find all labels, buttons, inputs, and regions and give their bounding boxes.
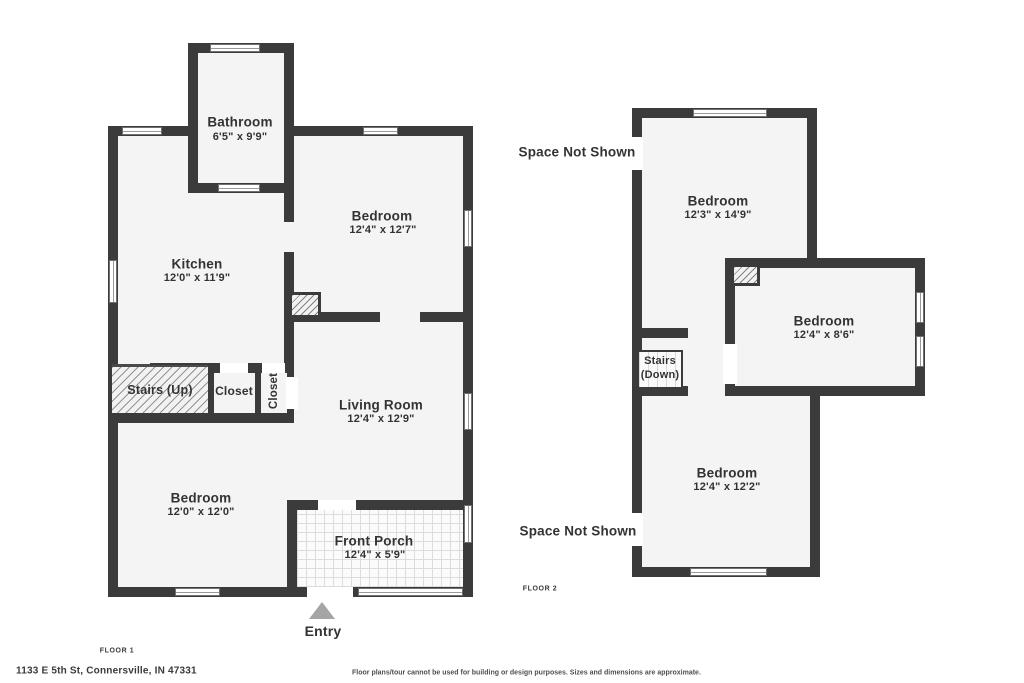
- stairs-down-label-line1: Stairs: [644, 355, 676, 367]
- room-dims-bedroom-top: 12'4" x 12'7": [349, 224, 416, 236]
- room-dims-bathroom: 6'5" x 9'9": [213, 131, 268, 143]
- wall: [810, 386, 820, 577]
- wall: [108, 126, 118, 597]
- wall: [287, 500, 297, 597]
- wall: [632, 328, 688, 338]
- window: [690, 568, 767, 576]
- wall: [108, 413, 294, 423]
- door-opening: [220, 363, 248, 373]
- room-dims-bedroom-right: 12'4" x 8'6": [794, 329, 855, 341]
- window: [122, 127, 162, 135]
- window: [358, 588, 463, 596]
- entry-arrow: [309, 602, 335, 619]
- room-label-closet-b: Closet: [268, 373, 280, 409]
- room-label-living-room: Living Room: [339, 398, 423, 413]
- wall: [915, 258, 925, 396]
- wall: [420, 312, 473, 322]
- wall: [255, 363, 261, 418]
- window: [464, 393, 472, 430]
- room-dims-living-room: 12'4" x 12'9": [347, 413, 414, 425]
- chimney: [289, 292, 321, 318]
- wall: [807, 108, 817, 268]
- floorplan-canvas: Bathroom 6'5" x 9'9" Bedroom 12'4" x 12'…: [0, 0, 1024, 683]
- window: [916, 292, 924, 323]
- wall: [632, 108, 642, 577]
- window: [109, 260, 117, 303]
- window: [464, 210, 472, 247]
- room-dims-front-porch: 12'4" x 5'9": [345, 549, 406, 561]
- window: [363, 127, 398, 135]
- room-label-bedroom-bottom: Bedroom: [171, 491, 232, 506]
- room-dims-kitchen: 12'0" x 11'9": [164, 272, 231, 284]
- room-label-closet-a: Closet: [215, 384, 253, 398]
- room-label-bedroom-bottom: Bedroom: [697, 466, 758, 481]
- room-label-stairs-up: Stairs (Up): [127, 383, 192, 397]
- disclaimer-text: Floor plans/tour cannot be used for buil…: [352, 670, 701, 677]
- property-address: 1133 E 5th St, Connersville, IN 47331: [16, 666, 197, 677]
- room-label-front-porch: Front Porch: [335, 534, 414, 549]
- door-opening: [286, 377, 298, 409]
- front-door-opening: [318, 500, 356, 510]
- room-dims-bedroom-top: 12'3" x 14'9": [684, 209, 751, 221]
- entry-label: Entry: [305, 623, 342, 639]
- room-label-bedroom-right: Bedroom: [794, 314, 855, 329]
- window: [218, 184, 260, 192]
- room-label-kitchen: Kitchen: [172, 257, 223, 272]
- room-dims-bedroom-bottom: 12'4" x 12'2": [693, 481, 760, 493]
- chimney: [731, 264, 760, 286]
- room-dims-bedroom-bottom: 12'0" x 12'0": [167, 506, 234, 518]
- floor1-tag: FLOOR 1: [100, 648, 135, 655]
- wall: [208, 363, 214, 418]
- stairs-down-label-line2: (Down): [641, 369, 679, 381]
- door-opening: [262, 363, 285, 373]
- window: [693, 109, 767, 117]
- floor2-tag: FLOOR 2: [523, 586, 558, 593]
- entry-door-opening: [307, 587, 353, 597]
- room-label-bathroom: Bathroom: [207, 115, 272, 130]
- room-label-bedroom-top: Bedroom: [352, 209, 413, 224]
- window: [210, 44, 260, 52]
- space-not-shown-label-bottom: Space Not Shown: [519, 524, 636, 539]
- wall: [287, 500, 473, 510]
- window: [916, 336, 924, 367]
- room-label-bedroom-top: Bedroom: [688, 194, 749, 209]
- wall: [284, 43, 294, 222]
- wall: [188, 43, 198, 193]
- window: [464, 505, 472, 543]
- wall: [725, 386, 925, 396]
- space-not-shown-label-top: Space Not Shown: [518, 145, 635, 160]
- window: [175, 588, 220, 596]
- door-opening: [723, 344, 737, 384]
